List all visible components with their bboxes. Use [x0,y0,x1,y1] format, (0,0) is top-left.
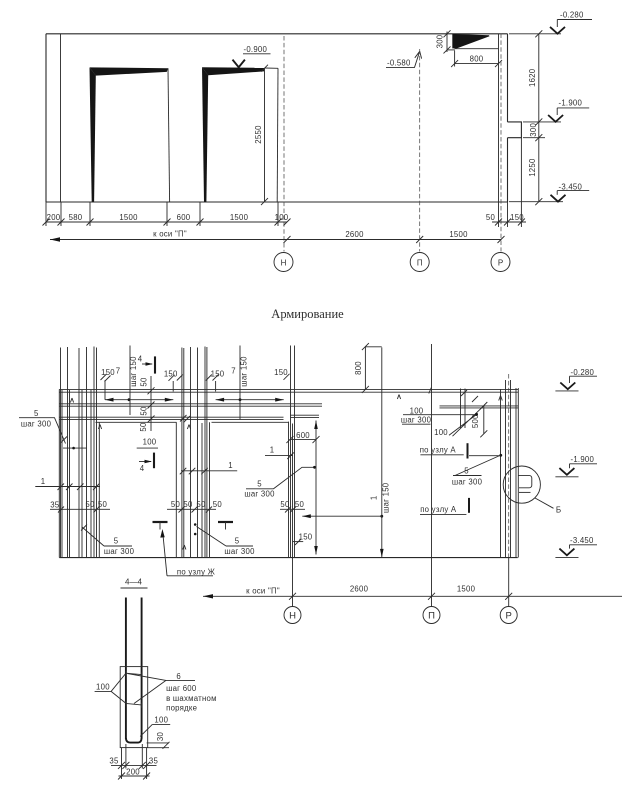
svg-text:П: П [428,611,435,622]
svg-text:100: 100 [96,683,110,692]
svg-text:50: 50 [98,500,108,509]
svg-text:50: 50 [171,500,181,509]
svg-text:150: 150 [101,368,115,377]
svg-text:50: 50 [280,500,290,509]
svg-text:600: 600 [296,431,310,440]
svg-text:6: 6 [176,672,181,681]
svg-text:50: 50 [140,406,149,416]
svg-text:500: 500 [471,414,480,428]
svg-text:Б: Б [556,506,561,515]
svg-text:шаг 300: шаг 300 [21,419,52,428]
svg-text:300: 300 [529,123,538,137]
svg-text:4—4: 4—4 [125,578,142,587]
svg-text:П: П [417,259,423,268]
svg-text:4: 4 [140,464,145,473]
svg-text:шаг 300: шаг 300 [452,477,483,486]
svg-text:-3.450: -3.450 [570,536,594,545]
svg-text:по узлу А: по узлу А [420,505,457,514]
svg-text:Армирование: Армирование [271,307,344,321]
svg-text:100: 100 [154,716,168,725]
svg-text:-1.900: -1.900 [571,455,595,464]
svg-text:-0.580: -0.580 [387,59,411,68]
svg-text:шаг 300: шаг 300 [104,547,135,556]
svg-text:5: 5 [34,409,39,418]
svg-text:50: 50 [140,377,149,387]
svg-text:150: 150 [164,370,178,379]
svg-text:30: 30 [156,732,165,742]
svg-text:5: 5 [235,537,240,546]
svg-text:1500: 1500 [119,213,138,222]
svg-text:порядке: порядке [166,704,197,713]
svg-text:5: 5 [257,480,262,489]
svg-text:1620: 1620 [528,68,537,87]
svg-text:4: 4 [138,355,143,364]
svg-text:35: 35 [50,501,60,510]
svg-text:100: 100 [275,213,289,222]
svg-text:2600: 2600 [345,230,364,239]
svg-text:шаг 300: шаг 300 [224,547,255,556]
svg-text:800: 800 [470,55,484,64]
svg-text:к оси "П": к оси "П" [153,230,187,239]
svg-text:7: 7 [116,366,121,375]
svg-text:100: 100 [143,438,157,447]
svg-text:Р: Р [498,259,503,268]
svg-text:150: 150 [274,368,288,377]
svg-text:50: 50 [486,213,496,222]
svg-text:1500: 1500 [457,584,476,593]
svg-text:600: 600 [177,213,191,222]
svg-text:580: 580 [69,213,83,222]
svg-text:1250: 1250 [528,158,537,177]
svg-text:Н: Н [281,259,287,268]
svg-text:50: 50 [196,500,206,509]
svg-text:100: 100 [410,407,424,416]
svg-text:150: 150 [299,532,313,541]
svg-text:300: 300 [435,34,444,48]
svg-text:50: 50 [295,500,305,509]
svg-text:к оси "П": к оси "П" [246,586,280,595]
svg-text:200: 200 [126,767,140,776]
svg-text:по узлу Ж: по узлу Ж [177,567,216,576]
svg-text:35: 35 [109,757,119,766]
svg-text:50: 50 [85,500,95,509]
svg-text:1500: 1500 [449,230,468,239]
svg-text:-0.900: -0.900 [244,45,268,54]
svg-text:2550: 2550 [254,125,263,144]
svg-text:шаг 150: шаг 150 [240,356,249,387]
svg-text:-3.450: -3.450 [559,182,583,191]
svg-text:шаг 300: шаг 300 [244,489,275,498]
svg-text:2600: 2600 [350,584,369,593]
svg-text:в шахматном: в шахматном [166,694,217,703]
svg-text:Н: Н [289,611,296,622]
svg-text:1: 1 [41,477,46,486]
svg-text:1: 1 [270,446,275,455]
svg-text:шаг 150: шаг 150 [381,482,390,513]
svg-text:800: 800 [354,361,363,375]
svg-text:150: 150 [510,213,524,222]
svg-text:1500: 1500 [230,213,249,222]
svg-text:50: 50 [213,500,223,509]
svg-text:по узлу А: по узлу А [420,445,457,454]
svg-text:100: 100 [434,428,448,437]
svg-text:150: 150 [211,370,225,379]
svg-text:Р: Р [506,611,512,622]
svg-text:-0.280: -0.280 [560,11,584,20]
svg-text:50: 50 [139,422,148,432]
svg-text:1: 1 [228,461,233,470]
svg-text:-1.900: -1.900 [559,98,583,107]
svg-text:50: 50 [183,500,193,509]
svg-text:шаг 300: шаг 300 [401,415,432,424]
svg-text:шаг 150: шаг 150 [129,356,138,387]
svg-text:35: 35 [149,757,159,766]
svg-text:1: 1 [369,496,378,501]
svg-text:200: 200 [47,213,61,222]
svg-text:-0.280: -0.280 [571,368,595,377]
svg-text:5: 5 [114,537,119,546]
svg-text:7: 7 [231,366,236,375]
svg-text:шаг 600: шаг 600 [166,684,197,693]
